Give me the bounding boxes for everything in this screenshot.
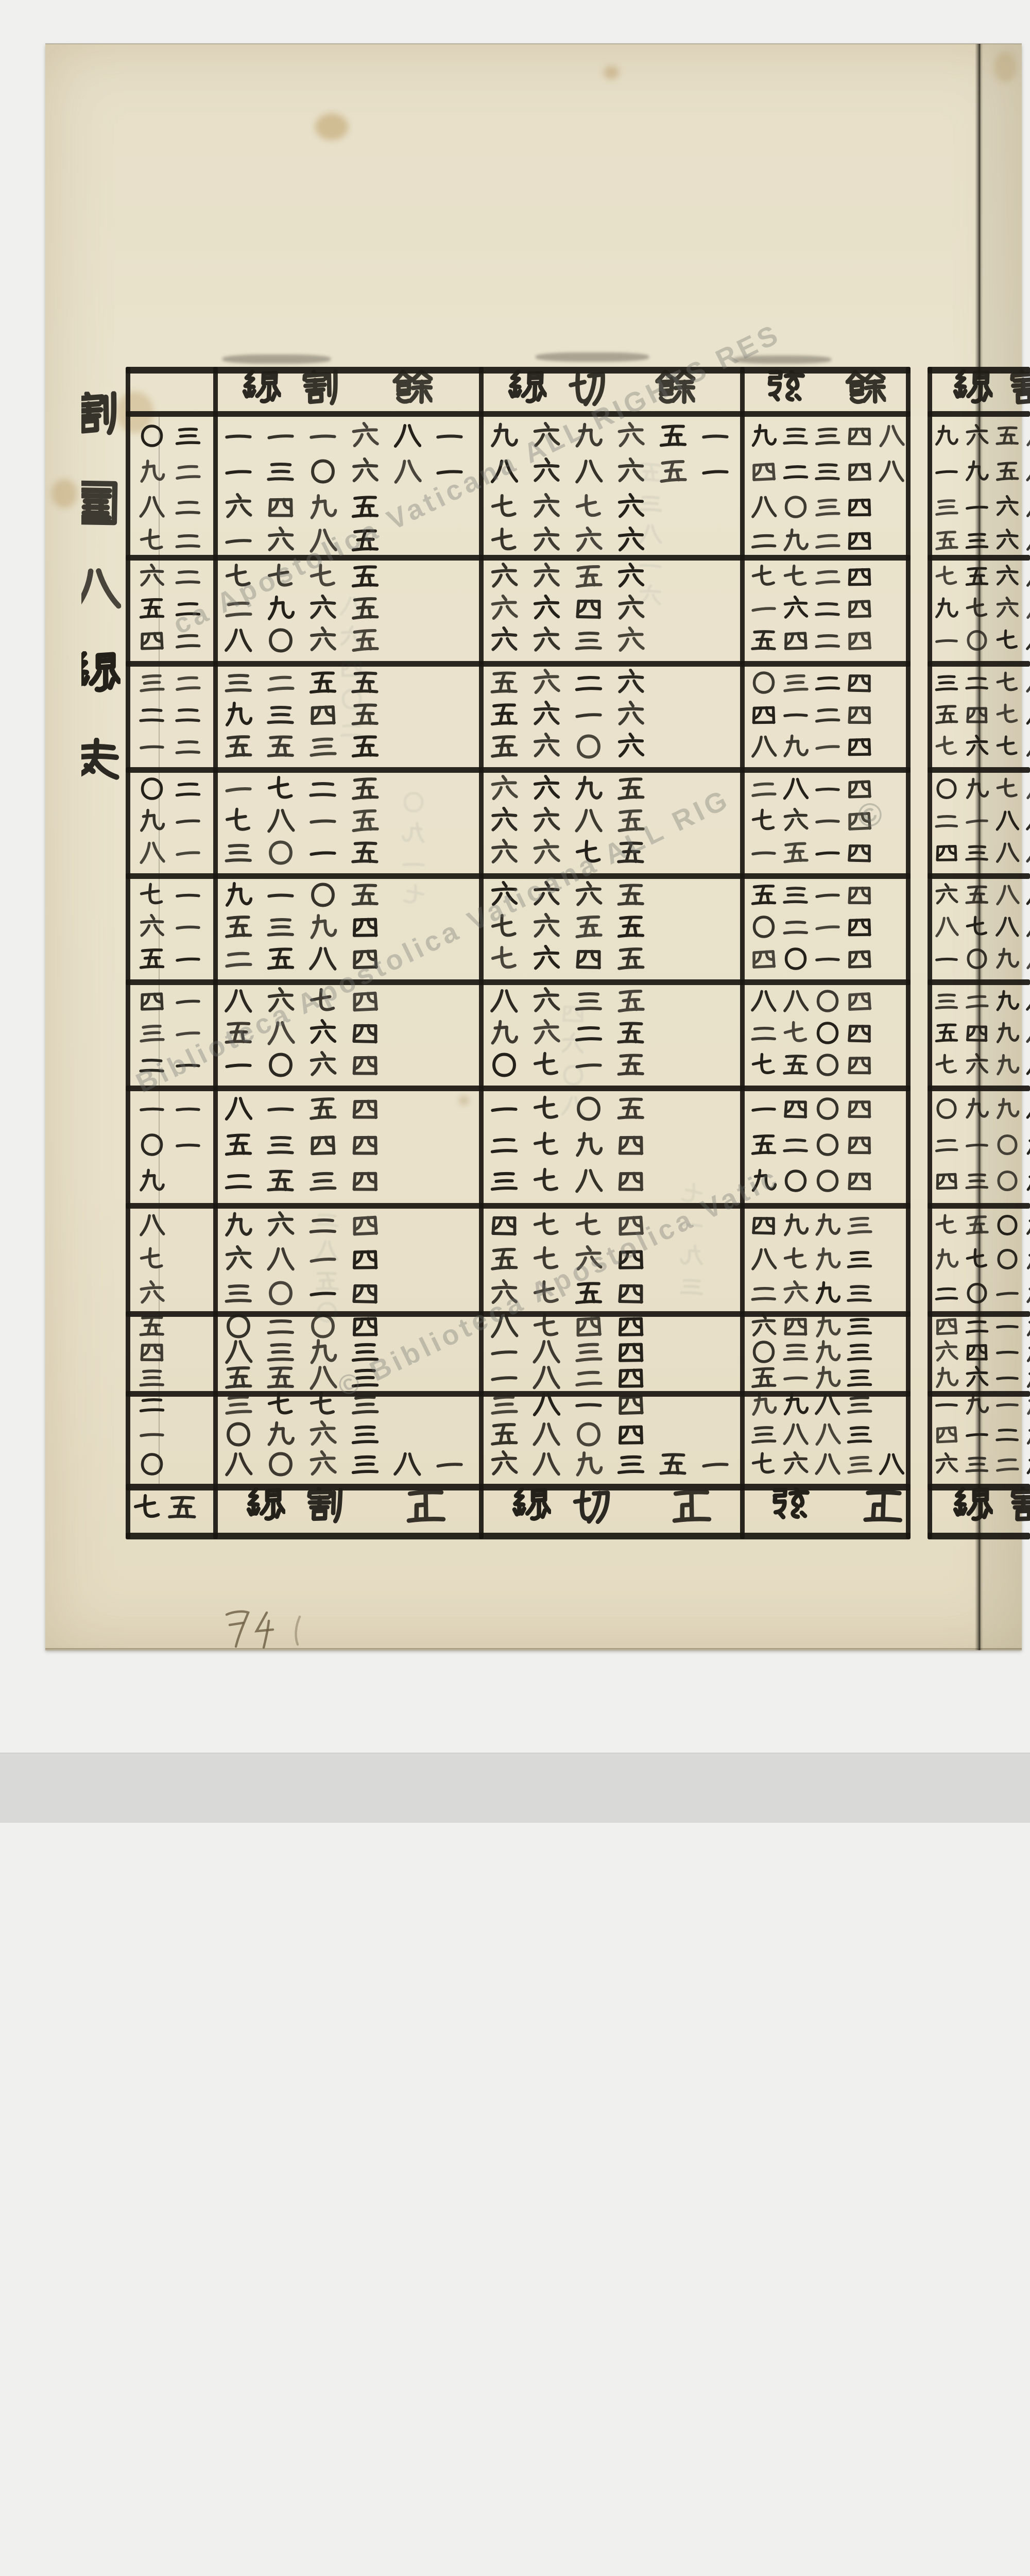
cjk-char <box>783 1421 809 1448</box>
cjk-char <box>574 1450 603 1479</box>
cosine-value <box>751 528 872 553</box>
minute-label <box>139 1212 165 1238</box>
cjk-char <box>266 668 295 697</box>
cjk-char <box>574 1337 603 1366</box>
cosecant-value <box>225 1279 379 1307</box>
cjk-char <box>995 1452 1020 1477</box>
cjk-char <box>751 494 777 520</box>
cjk-char <box>1025 946 1030 971</box>
minute-label <box>139 1132 165 1158</box>
cjk-char <box>139 1451 165 1478</box>
cosine-value <box>751 1246 872 1272</box>
cjk-char <box>659 422 687 450</box>
cjk-char <box>783 1212 809 1239</box>
table-rule <box>928 411 1030 417</box>
cjk-char <box>995 1021 1020 1045</box>
cjk-char <box>574 732 603 761</box>
cjk-char <box>436 1450 464 1479</box>
cjk-char <box>965 1393 989 1417</box>
minute-label <box>175 946 201 972</box>
cjk-char <box>847 459 873 485</box>
cosine-value <box>751 914 872 940</box>
cjk-char <box>351 1131 380 1159</box>
cjk-char <box>1026 1422 1030 1447</box>
cjk-char <box>490 1167 518 1195</box>
cotangent-value <box>490 1131 645 1159</box>
cjk-char <box>225 1131 252 1159</box>
cjk-char <box>224 626 253 655</box>
cjk-char <box>490 987 519 1015</box>
cjk-char <box>847 702 873 728</box>
cosecant-value <box>225 1131 379 1159</box>
cotangent-value <box>490 1167 645 1195</box>
cjk-char <box>965 1097 989 1121</box>
cjk-char <box>315 1239 339 1262</box>
side-cosecant-value <box>935 703 1030 726</box>
cotangent-value <box>490 563 645 590</box>
cjk-char <box>701 421 730 450</box>
cjk-char <box>308 912 337 941</box>
cjk-char <box>965 1366 989 1389</box>
cjk-char <box>1026 915 1030 939</box>
table-rule <box>126 555 911 561</box>
cjk-char <box>639 492 662 515</box>
cjk-char <box>533 1391 560 1418</box>
side-cosecant-value <box>935 1422 1030 1446</box>
cjk-char <box>533 1338 561 1366</box>
cjk-char <box>575 1211 603 1240</box>
cjk-char <box>309 1051 337 1079</box>
cjk-char <box>782 1020 809 1046</box>
cjk-char <box>617 1167 645 1195</box>
cjk-char <box>995 1132 1020 1157</box>
cjk-char <box>401 852 426 876</box>
cjk-char <box>490 1364 519 1392</box>
cjk-char <box>934 914 959 939</box>
cjk-char <box>309 626 337 655</box>
cjk-char <box>309 839 337 867</box>
cjk-char <box>782 1167 809 1194</box>
cjk-char <box>750 988 777 1014</box>
cjk-char <box>490 594 519 623</box>
cjk-char <box>847 596 873 622</box>
footer-sine <box>863 1487 903 1528</box>
cjk-char <box>225 1364 253 1392</box>
cjk-char <box>995 1213 1019 1237</box>
cjk-char <box>175 882 201 908</box>
cjk-char <box>490 1051 518 1079</box>
cjk-char <box>401 790 426 815</box>
cjk-char <box>965 1340 989 1364</box>
cjk-char <box>490 1390 519 1419</box>
cjk-char <box>533 595 560 622</box>
minute-label <box>139 670 165 696</box>
cosecant-value <box>225 1051 379 1079</box>
cjk-char <box>139 776 165 802</box>
cjk-char <box>224 987 253 1015</box>
cjk-char <box>671 1487 712 1528</box>
footer-tangent <box>672 1487 712 1528</box>
cjk-char <box>934 776 959 801</box>
cjk-char <box>995 564 1020 589</box>
cjk-char <box>308 493 337 521</box>
cjk-char <box>139 528 165 554</box>
cjk-char <box>815 1020 840 1046</box>
side-cosecant-value <box>935 1053 1030 1077</box>
minute-label <box>175 528 201 553</box>
cjk-char <box>340 718 364 742</box>
cjk-char <box>814 1364 841 1391</box>
cjk-char <box>701 457 729 485</box>
cjk-char <box>783 1451 809 1478</box>
cjk-char <box>935 1213 959 1238</box>
minute-label <box>175 702 201 727</box>
cjk-char <box>267 1391 295 1418</box>
cjk-char <box>935 703 959 727</box>
cjk-char <box>934 495 959 519</box>
minute-label <box>139 1313 165 1339</box>
cjk-char <box>934 1340 959 1364</box>
minute-label <box>175 734 201 759</box>
cotangent-value <box>490 1338 645 1366</box>
cjk-char <box>351 775 380 803</box>
cjk-char <box>351 1279 380 1308</box>
cjk-char <box>175 988 201 1014</box>
footer-secant <box>406 1487 446 1528</box>
cjk-char <box>393 1450 422 1479</box>
cjk-char <box>267 913 295 941</box>
side-cosecant-value <box>935 1393 1030 1416</box>
cjk-char <box>139 701 165 728</box>
cjk-char <box>751 1052 777 1078</box>
cjk-char <box>175 669 201 696</box>
cjk-char <box>490 774 519 803</box>
paper-stain <box>315 113 348 140</box>
minute-label <box>139 882 165 908</box>
table-rule <box>928 661 1030 667</box>
cjk-char <box>308 1450 337 1479</box>
cosecant-value <box>225 1338 379 1366</box>
cjk-char <box>1026 841 1030 865</box>
cjk-char <box>533 1450 561 1479</box>
cjk-char <box>814 913 841 940</box>
side-cosecant-value <box>935 989 1030 1013</box>
cjk-char <box>846 1280 873 1307</box>
cjk-char <box>1026 529 1030 553</box>
cjk-char <box>847 734 872 759</box>
cjk-char <box>175 701 201 728</box>
cjk-char <box>995 597 1020 621</box>
minute-label <box>175 494 201 520</box>
cjk-char <box>814 494 841 520</box>
cjk-char <box>351 913 379 941</box>
cjk-char <box>224 1211 253 1240</box>
cjk-char <box>308 774 337 803</box>
cjk-char <box>965 670 989 695</box>
cjk-char <box>139 839 165 866</box>
cjk-char <box>139 1365 165 1391</box>
minute-label <box>139 840 165 866</box>
cjk-char <box>815 1096 841 1122</box>
cosine-value <box>751 1451 904 1477</box>
show-through-column <box>340 587 364 749</box>
cjk-char <box>765 369 806 411</box>
cjk-char <box>935 841 958 865</box>
side-cosecant-value <box>935 1021 1030 1045</box>
cosecant-value <box>225 457 463 485</box>
cjk-char <box>935 883 959 907</box>
cjk-char <box>847 914 872 940</box>
cjk-char <box>814 733 841 760</box>
cjk-char <box>561 1001 586 1026</box>
cjk-char <box>751 1096 777 1122</box>
cjk-char <box>965 808 989 833</box>
cjk-char <box>1026 460 1030 484</box>
header-cosecant <box>392 370 433 410</box>
cjk-char <box>139 1313 165 1340</box>
cjk-char <box>351 563 379 590</box>
cjk-char <box>402 821 425 845</box>
cjk-char <box>561 1094 586 1118</box>
cjk-char <box>751 423 777 449</box>
cjk-char <box>139 423 165 449</box>
cjk-char <box>965 459 989 484</box>
side-header <box>952 369 993 411</box>
cjk-char <box>935 671 958 694</box>
cjk-char <box>506 369 548 411</box>
cjk-char <box>266 1130 295 1159</box>
cotangent-value <box>490 595 645 622</box>
side-cosecant-value <box>935 947 1030 971</box>
cjk-char <box>533 493 561 521</box>
cjk-char <box>1026 1133 1030 1157</box>
cjk-char <box>309 669 337 697</box>
cjk-char <box>965 628 989 653</box>
cjk-char <box>351 1245 379 1273</box>
cjk-char <box>139 914 165 940</box>
cosecant-value <box>225 839 379 867</box>
cjk-char <box>935 809 959 833</box>
cjk-char <box>225 881 252 909</box>
ink-smudge <box>536 352 649 362</box>
cosine-value <box>751 564 872 589</box>
cosine-value <box>751 882 872 908</box>
header-cosine <box>765 370 805 410</box>
minute-label <box>139 423 165 449</box>
cjk-char <box>139 564 165 590</box>
show-through-column <box>639 453 662 615</box>
cjk-char <box>751 1421 777 1448</box>
cjk-char <box>783 1246 809 1273</box>
side-cosecant-value <box>935 735 1030 758</box>
cjk-char <box>351 421 380 450</box>
cjk-char <box>267 945 295 973</box>
cjk-char <box>308 732 337 761</box>
cjk-char <box>309 701 337 729</box>
minute-label <box>139 702 165 727</box>
side-cosecant-value <box>935 1169 1030 1193</box>
cjk-char <box>751 914 777 940</box>
cjk-char <box>167 1493 197 1522</box>
cosine-value <box>751 1212 872 1238</box>
cjk-char <box>782 839 809 866</box>
cosine-value <box>751 702 872 727</box>
cjk-char <box>995 671 1020 695</box>
cjk-char <box>309 1095 337 1123</box>
cjk-char <box>308 1390 337 1419</box>
cjk-char <box>965 1021 989 1045</box>
cjk-char <box>139 1131 165 1158</box>
cjk-char <box>770 1487 811 1528</box>
cjk-char <box>847 1246 872 1272</box>
cjk-char <box>879 1451 904 1477</box>
cjk-char <box>617 1338 645 1366</box>
side-cosecant-value <box>935 597 1030 620</box>
cjk-char <box>532 1130 561 1159</box>
cjk-char <box>750 807 777 834</box>
cjk-char <box>750 1212 777 1239</box>
cjk-char <box>435 421 464 450</box>
cjk-char <box>532 1094 561 1123</box>
cjk-char <box>315 1269 339 1294</box>
cjk-char <box>814 563 841 590</box>
cjk-char <box>267 807 295 835</box>
cotangent-value <box>490 527 645 554</box>
side-cosecant-value <box>935 495 1030 519</box>
cjk-char <box>175 564 201 590</box>
cjk-char <box>490 733 519 761</box>
cjk-char <box>783 1365 809 1391</box>
side-cosecant-value <box>935 915 1030 939</box>
cjk-char <box>490 493 519 521</box>
footer-degree-57 <box>168 1493 197 1522</box>
cjk-char <box>814 1246 841 1273</box>
cjk-char <box>309 1019 337 1047</box>
side-cosecant-value <box>935 629 1030 652</box>
cjk-char <box>175 528 201 554</box>
cjk-char <box>139 1020 165 1046</box>
cjk-char <box>952 1487 993 1528</box>
cjk-char <box>351 1019 380 1047</box>
cjk-char <box>575 807 603 835</box>
cjk-char <box>846 627 873 654</box>
cjk-char <box>878 422 905 449</box>
cjk-char <box>815 1212 841 1239</box>
cjk-char <box>225 1312 253 1341</box>
cjk-char <box>241 369 282 411</box>
cjk-char <box>701 1450 730 1479</box>
table-rule <box>126 1203 911 1209</box>
cotangent-value <box>490 669 645 697</box>
side-footer <box>1008 1487 1030 1528</box>
side-footer <box>952 1487 993 1528</box>
cotangent-value <box>490 807 645 835</box>
cjk-char <box>267 422 295 450</box>
cjk-char <box>575 701 603 729</box>
cosine-value <box>751 1132 872 1158</box>
show-through-column <box>315 1200 339 1331</box>
side-cosecant-value <box>935 424 1030 448</box>
cjk-char <box>490 944 519 973</box>
show-through-column <box>561 994 585 1125</box>
cjk-char <box>351 1450 379 1478</box>
cjk-char <box>638 460 663 485</box>
cotangent-value <box>490 701 645 728</box>
minute-label <box>175 882 201 908</box>
cjk-char <box>935 1281 958 1305</box>
cjk-char <box>574 562 603 591</box>
cosine-value <box>751 423 904 449</box>
show-through-column <box>680 1175 703 1306</box>
cjk-char <box>659 1450 688 1479</box>
cjk-char <box>139 988 165 1014</box>
cjk-char <box>267 775 295 803</box>
table-rule <box>928 979 1030 985</box>
header-cotangent <box>507 370 547 410</box>
cjk-char <box>309 807 337 835</box>
cjk-char <box>225 457 252 485</box>
cjk-char <box>750 1391 777 1418</box>
cjk-char <box>995 1393 1020 1417</box>
cjk-char <box>639 553 663 578</box>
cjk-char <box>1025 1213 1030 1238</box>
cjk-char <box>139 1095 165 1122</box>
cjk-char <box>965 1133 989 1157</box>
cjk-char <box>175 914 201 940</box>
cosecant-value <box>225 493 379 521</box>
cjk-char <box>995 460 1020 484</box>
cosine-value <box>751 776 872 802</box>
cjk-char <box>935 1133 959 1157</box>
cjk-char <box>533 1420 561 1449</box>
cjk-char <box>574 1390 603 1419</box>
side-cosecant-value <box>935 1452 1030 1476</box>
cjk-char <box>965 777 989 801</box>
cjk-char <box>934 1314 959 1338</box>
cjk-char <box>814 1391 841 1418</box>
cjk-char <box>934 1247 959 1272</box>
table-rule <box>126 661 911 667</box>
footer-bar: Copyright © Biblioteca Apostolica Vatica… <box>0 1753 1030 1823</box>
cosecant-value <box>225 1167 379 1195</box>
cjk-char <box>815 1132 841 1158</box>
cjk-char <box>965 840 989 865</box>
cjk-char <box>490 1420 519 1449</box>
cjk-char <box>351 1312 379 1340</box>
cosine-value <box>751 946 872 972</box>
cjk-char <box>574 594 603 623</box>
cosecant-value <box>225 1312 379 1340</box>
cjk-char <box>81 737 122 788</box>
cotangent-value <box>490 1391 645 1418</box>
cjk-char <box>266 1050 295 1079</box>
minute-label <box>175 564 201 589</box>
minute-label <box>139 628 165 653</box>
cjk-char <box>782 1280 809 1307</box>
side-cosecant-value <box>935 777 1030 801</box>
cosine-value <box>751 1365 872 1391</box>
cjk-char <box>995 1053 1020 1077</box>
cjk-char <box>308 944 337 973</box>
cjk-char <box>532 1019 561 1047</box>
cjk-char <box>532 668 561 697</box>
cjk-char <box>175 494 201 520</box>
cjk-char <box>225 1167 252 1195</box>
cjk-char <box>965 947 989 971</box>
side-cosecant-value <box>935 1340 1030 1364</box>
cjk-char <box>1026 495 1030 519</box>
cjk-char <box>863 1487 904 1529</box>
